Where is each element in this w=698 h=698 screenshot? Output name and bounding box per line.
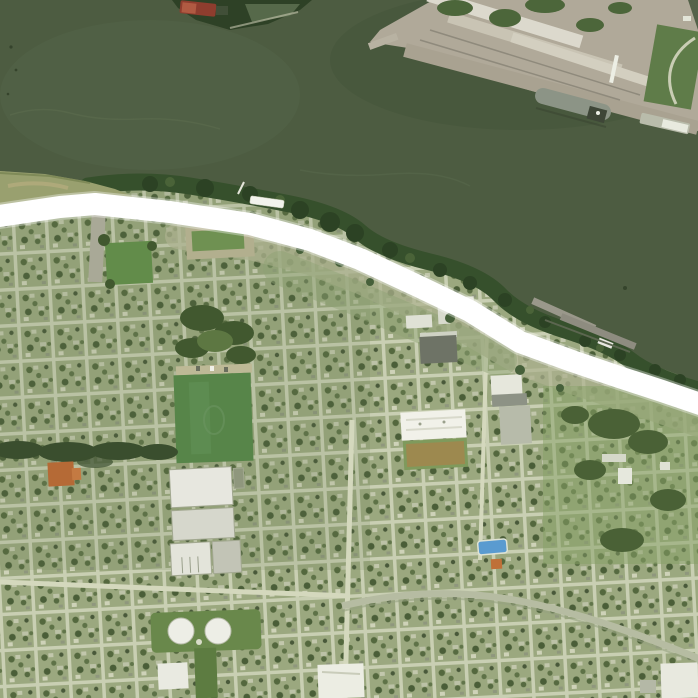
storage-tanks xyxy=(150,609,261,653)
white-building-1 xyxy=(157,662,188,690)
green-lots xyxy=(543,386,698,564)
upper-green-field xyxy=(98,234,157,289)
satellite-map-viewport[interactable] xyxy=(0,0,698,698)
school-building xyxy=(400,409,466,440)
park-field xyxy=(173,364,253,464)
satellite-map-canvas[interactable] xyxy=(0,0,698,698)
water-shade-light xyxy=(0,20,300,170)
white-building-2 xyxy=(317,663,364,698)
green-strip xyxy=(194,648,218,698)
commercial-dark-building xyxy=(419,331,457,364)
athletic-field xyxy=(404,439,466,468)
